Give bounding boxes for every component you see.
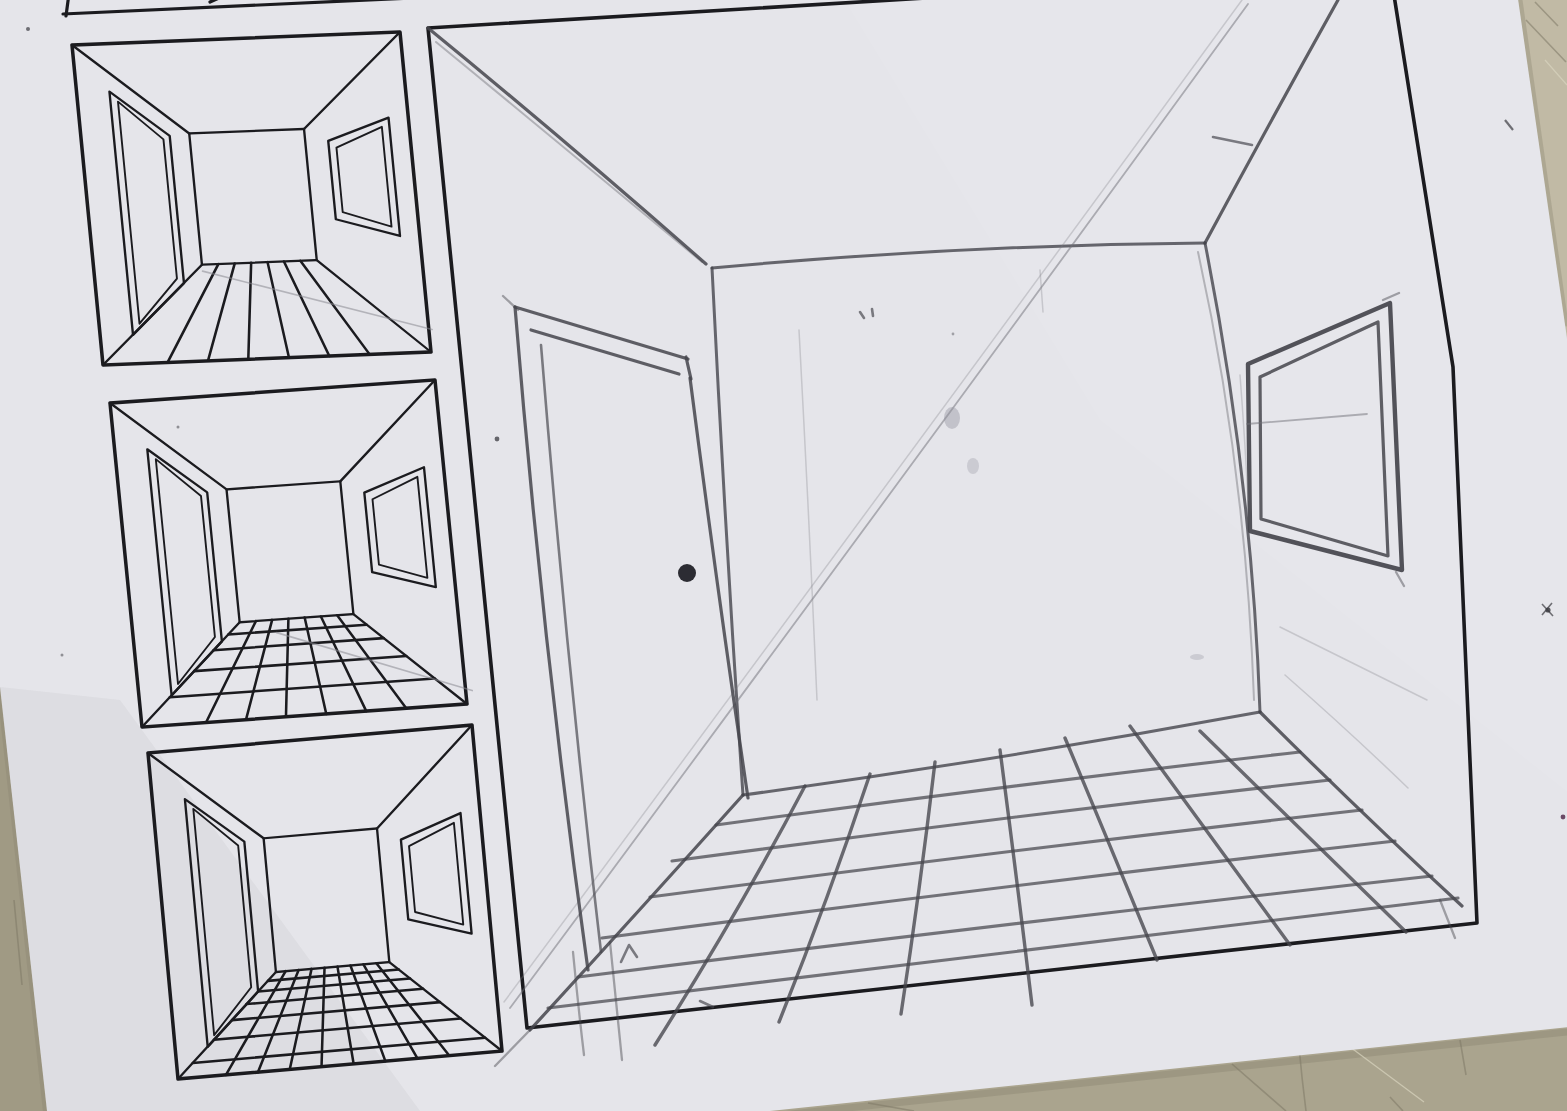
smudge bbox=[944, 407, 960, 429]
smudge bbox=[967, 458, 979, 474]
smudge bbox=[1190, 654, 1204, 660]
photo-stage bbox=[0, 0, 1567, 1111]
purple-fleck bbox=[1561, 815, 1566, 820]
worksheet-photo bbox=[0, 0, 1567, 1111]
door-knob bbox=[678, 564, 696, 582]
paper bbox=[0, 0, 1567, 1111]
